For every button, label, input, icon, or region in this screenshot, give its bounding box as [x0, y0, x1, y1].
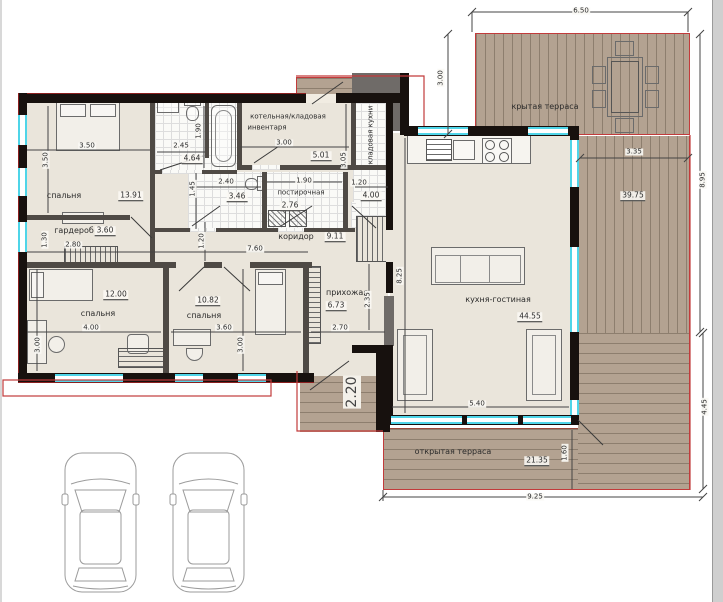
loveseat-right-seat — [532, 335, 556, 395]
wc-area: 3.46 — [227, 192, 248, 202]
bedroom1-height: 3.50 — [43, 151, 50, 169]
porch-dim-2-20: 2.20 — [343, 375, 361, 408]
door-opening — [386, 230, 393, 262]
wardrobe-label: гардероб — [54, 227, 94, 235]
bedroom2-height: 3.00 — [35, 336, 42, 354]
wall — [303, 268, 309, 373]
dim-3-35: 3.35 — [625, 149, 643, 156]
dim-3-00-terrace: 3.00 — [438, 69, 445, 87]
side-terrace-lower-deck — [578, 333, 690, 490]
loveseat-left-seat — [403, 335, 427, 395]
wall — [24, 262, 176, 268]
window — [18, 115, 27, 145]
pillow — [60, 104, 86, 117]
window — [55, 374, 123, 382]
bedroom3-label: спальня — [187, 312, 221, 320]
window-mullion — [462, 416, 467, 424]
stove — [482, 138, 512, 164]
dim-5-40: 5.40 — [468, 401, 486, 408]
hallway-label: прихожая — [326, 289, 368, 297]
pantry-area: 4.00 — [361, 191, 382, 201]
window-band — [391, 416, 571, 424]
wall — [204, 262, 222, 268]
side-terrace-upper-deck — [578, 136, 690, 333]
dim-1-60: 1.60 — [562, 444, 569, 462]
desk — [173, 329, 211, 346]
porch-wall — [376, 348, 390, 432]
dim-8-95: 8.95 — [700, 171, 707, 189]
window — [528, 127, 568, 135]
kitchen-sink — [453, 140, 475, 160]
corridor-height: 1.20 — [199, 232, 206, 250]
bedroom3-height: 3.00 — [238, 336, 245, 354]
kitchen-wall-left — [386, 93, 393, 293]
floor-plan: крытая терраса 6.50 3.00 3.35 39.75 8.95… — [0, 0, 723, 602]
window — [570, 400, 579, 415]
window — [238, 374, 266, 382]
wall — [351, 103, 356, 165]
wall — [343, 172, 348, 232]
bathroom-width: 2.45 — [172, 143, 190, 150]
bedroom1-width: 3.50 — [78, 143, 96, 150]
door-opening — [306, 94, 336, 103]
washing-machine — [268, 210, 286, 227]
bathroom-height: 1.90 — [196, 122, 203, 140]
window — [175, 374, 203, 382]
kitchen-wall-unit — [384, 296, 394, 346]
pantry-width: 1.20 — [350, 180, 368, 187]
dishwasher — [426, 139, 452, 161]
wall — [163, 268, 169, 373]
corridor-label: коридор — [278, 233, 314, 241]
door-opening — [252, 165, 280, 170]
bathroom-area: 4.64 — [182, 154, 203, 164]
corridor-width: 7.60 — [246, 246, 264, 253]
bedroom1-label: спальня — [47, 192, 81, 200]
wardrobe-width: 2.80 — [64, 242, 82, 249]
exterior-wall-top — [18, 93, 306, 103]
boiler-label-line1: котельная/кладовая — [250, 114, 326, 121]
laundry-width: 1.90 — [295, 178, 313, 185]
terrace-chair — [615, 118, 634, 133]
open-terrace-area: 21.35 — [524, 456, 549, 466]
window-mullion — [518, 416, 523, 424]
wardrobe-area: 3.60 — [95, 226, 116, 236]
laundry-label: постирочная — [277, 190, 324, 197]
pantry-label: кладовая кухни — [368, 106, 375, 165]
pillow — [31, 272, 44, 298]
corridor-area: 9.11 — [325, 232, 346, 242]
sofa-divider — [460, 255, 461, 283]
wardrobe-height: 1.30 — [42, 231, 49, 249]
bedroom2-width: 4.00 — [82, 325, 100, 332]
open-terrace-label: открытая терраса — [415, 448, 492, 456]
left-frame-line — [0, 0, 2, 602]
hallway-area: 6.73 — [326, 301, 347, 311]
window — [18, 222, 27, 252]
dim-8-25: 8.25 — [397, 267, 404, 285]
boiler-height: 3.05 — [341, 151, 348, 169]
wall — [150, 103, 155, 220]
kitchen-living-area: 44.55 — [517, 312, 542, 322]
toilet-bowl — [186, 106, 199, 121]
window — [418, 127, 468, 135]
right-frame-strip — [712, 0, 723, 602]
covered-terrace-label: крытая терраса — [511, 103, 578, 111]
wall — [24, 215, 130, 220]
bedroom3-width: 3.60 — [215, 325, 233, 332]
dim-9-25: 9.25 — [526, 494, 544, 501]
terrace-chair — [645, 90, 659, 108]
bedroom3-area: 10.82 — [195, 296, 220, 306]
washing-machine — [289, 210, 307, 227]
dim-2-70: 2.70 — [331, 325, 349, 332]
exterior-wall-top — [336, 93, 406, 103]
bedroom2-label: спальня — [81, 310, 115, 318]
terrace-table-top — [611, 61, 639, 113]
wall — [237, 103, 242, 170]
wall — [150, 218, 155, 266]
terrace-chair — [592, 66, 606, 84]
sofa-divider — [489, 255, 490, 283]
dim-4-45: 4.45 — [702, 398, 709, 416]
dim-2-35: 2.35 — [365, 291, 372, 309]
boiler-label-line2: инвентаря — [247, 125, 286, 132]
bedroom2-area: 12.00 — [103, 290, 128, 300]
side-terrace-area: 39.75 — [620, 191, 645, 201]
wc-height: 1.45 — [190, 180, 197, 198]
chair — [48, 336, 65, 353]
boiler-width: 3.00 — [275, 140, 293, 147]
dim-6-50: 6.50 — [572, 8, 590, 15]
laundry-area: 2.76 — [280, 201, 301, 211]
covered-terrace-deck — [475, 33, 690, 135]
closet — [118, 348, 164, 368]
pillow — [258, 272, 283, 285]
terrace-chair — [592, 90, 606, 108]
bathtub-inner — [215, 110, 232, 162]
wall — [205, 103, 209, 158]
door-opening — [351, 202, 356, 228]
parked-cars — [55, 448, 315, 600]
wc-toilet-bowl — [245, 178, 258, 190]
door-opening — [130, 215, 150, 220]
wall — [262, 172, 267, 232]
kitchen-living-label: кухня-гостиная — [465, 296, 531, 304]
sofa-seat — [435, 255, 521, 283]
boiler-area: 5.01 — [311, 151, 332, 161]
window — [570, 247, 579, 332]
window — [570, 140, 579, 187]
wc-width: 2.40 — [217, 179, 235, 186]
bedroom1-area: 13.91 — [118, 191, 143, 201]
window — [18, 168, 27, 196]
terrace-chair — [615, 41, 634, 56]
pantry-shelves — [356, 216, 388, 262]
terrace-chair — [645, 66, 659, 84]
pillow — [90, 104, 116, 117]
car-top-view — [62, 453, 247, 592]
door-opening — [162, 170, 202, 174]
